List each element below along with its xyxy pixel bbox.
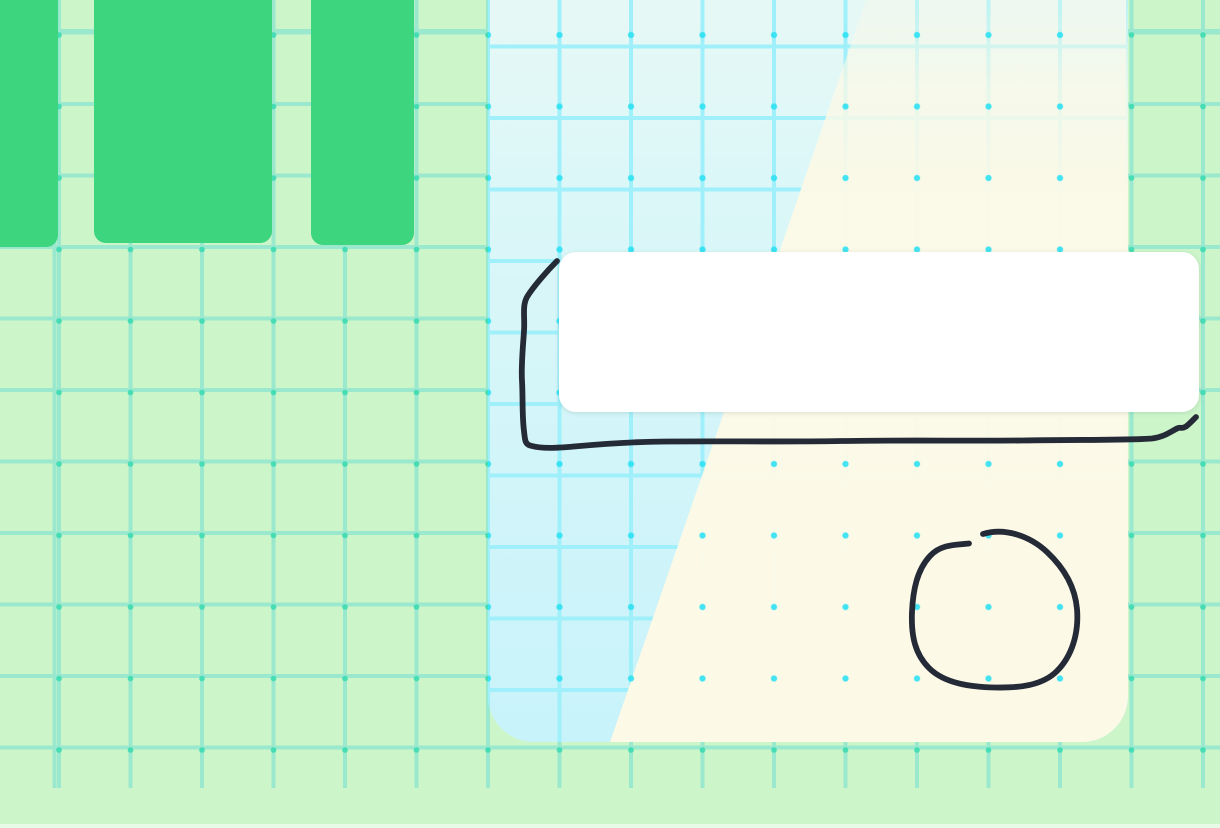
bottom-edge-strip	[0, 824, 1220, 828]
green-rectangle-2[interactable]	[94, 0, 272, 243]
green-rectangle-3[interactable]	[311, 0, 414, 245]
white-card[interactable]	[559, 252, 1199, 412]
green-rectangle-1[interactable]	[0, 0, 58, 247]
